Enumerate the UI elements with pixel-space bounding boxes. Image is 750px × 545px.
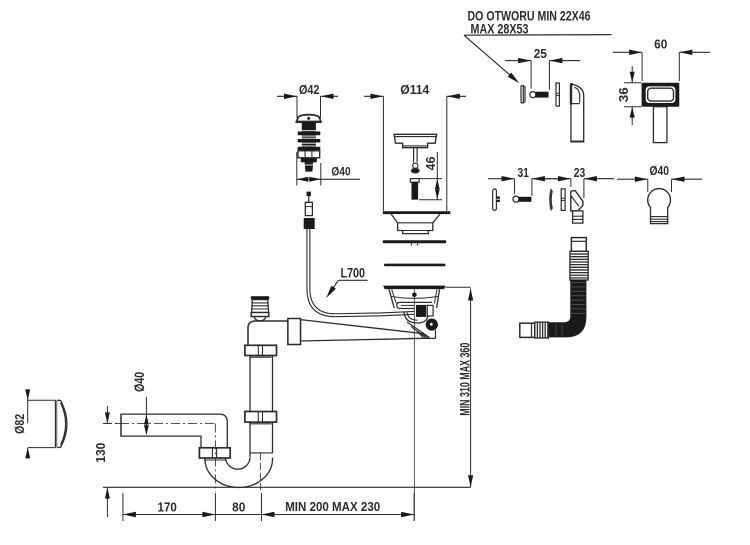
svg-text:170: 170 <box>158 500 177 515</box>
svg-text:60: 60 <box>654 36 667 51</box>
svg-text:31: 31 <box>517 165 529 180</box>
svg-text:L700: L700 <box>341 266 366 281</box>
svg-text:Ø82: Ø82 <box>12 414 27 434</box>
svg-text:Ø42: Ø42 <box>299 82 320 97</box>
svg-text:MAX 28X53: MAX 28X53 <box>471 21 529 37</box>
svg-text:46: 46 <box>423 157 438 171</box>
svg-text:Ø114: Ø114 <box>400 82 430 97</box>
svg-text:MIN 200 MAX 230: MIN 200 MAX 230 <box>285 499 380 514</box>
svg-text:80: 80 <box>232 500 245 515</box>
svg-text:36: 36 <box>616 87 631 102</box>
svg-text:Ø40: Ø40 <box>649 164 669 178</box>
svg-text:Ø40: Ø40 <box>132 372 147 392</box>
svg-text:MIN 310 MAX 360: MIN 310 MAX 360 <box>456 343 472 416</box>
svg-text:25: 25 <box>534 46 547 61</box>
svg-text:23: 23 <box>574 165 586 180</box>
svg-text:Ø40: Ø40 <box>331 164 350 178</box>
svg-text:130: 130 <box>93 443 108 463</box>
